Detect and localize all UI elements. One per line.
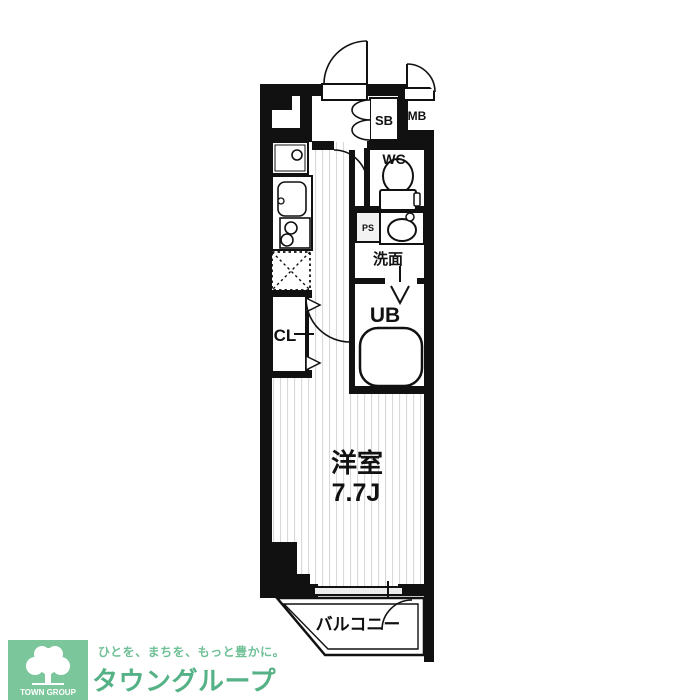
label-closet: CL <box>274 326 297 345</box>
label-shoebox: SB <box>375 113 393 128</box>
kitchen <box>272 142 312 290</box>
brand-company-name: タウングループ <box>92 661 307 698</box>
label-washroom: 洗面 <box>373 250 403 268</box>
label-room-size: 7.7J <box>332 479 381 507</box>
floorplan-page: SB MB WC PS 洗面 UB CL 洋室 7.7J バルコニー <box>0 0 700 700</box>
label-pipespace: PS <box>362 223 374 233</box>
label-toilet: WC <box>382 151 405 167</box>
label-meterbox: MB <box>408 109 427 123</box>
label-main-room: 洋室 <box>331 448 383 478</box>
entrance-door <box>322 41 367 100</box>
brand-tagline: ひとを、まちを、もっと豊かに。 <box>98 643 307 660</box>
town-group-tree-icon: TOWN GROUP <box>8 640 88 700</box>
floor-plan: SB MB WC PS 洗面 UB CL 洋室 7.7J バルコニー <box>0 0 700 700</box>
label-balcony: バルコニー <box>316 615 401 634</box>
logo-caption: TOWN GROUP <box>20 688 77 697</box>
town-group-logo: TOWN GROUP ひとを、まちを、もっと豊かに。 タウングループ <box>8 638 308 700</box>
label-bath: UB <box>370 304 400 327</box>
sink-icon <box>380 212 424 244</box>
meterbox-door <box>404 64 435 100</box>
